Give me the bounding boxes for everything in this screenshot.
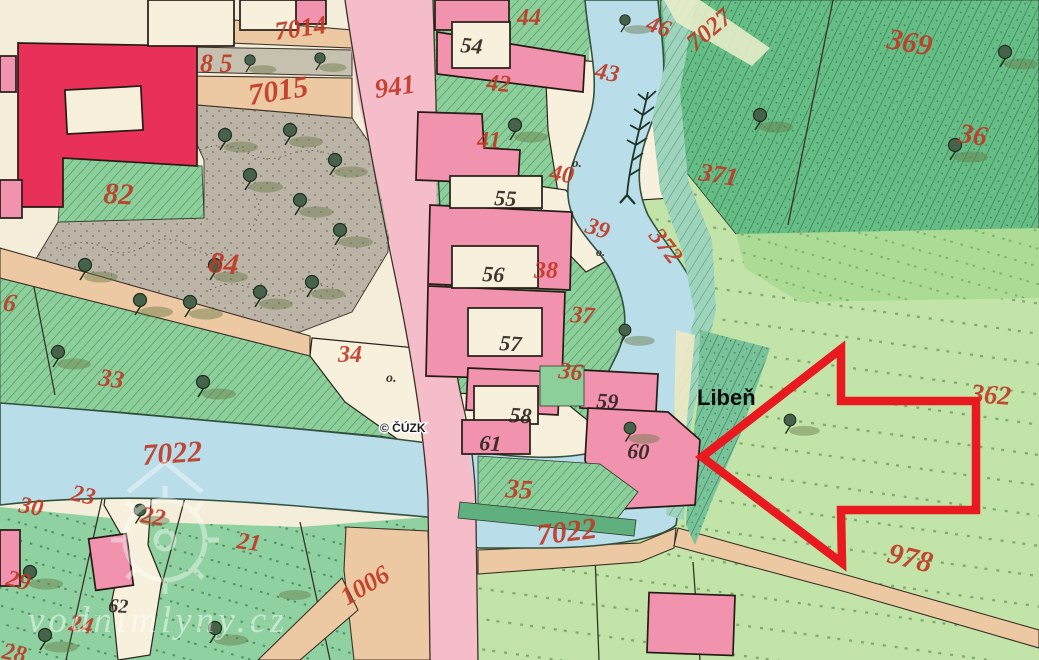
parcel-label-41: 41 xyxy=(476,128,501,154)
house-number-o.: o. xyxy=(386,371,397,386)
parcel-label-30: 30 xyxy=(16,492,45,522)
parcel-label-36: 36 xyxy=(556,358,584,386)
parcel-label-42: 42 xyxy=(484,70,511,98)
house-number-59: 59 xyxy=(596,388,619,414)
parcel-label-82: 82 xyxy=(103,177,135,212)
courtyard xyxy=(65,86,143,134)
house-number-56: 56 xyxy=(482,261,505,287)
house-number-54: 54 xyxy=(460,32,484,59)
parcel-label-33: 33 xyxy=(96,364,126,394)
cuzk-copyright: © ČÚZK xyxy=(380,420,426,435)
house-number-61: 61 xyxy=(479,430,502,456)
parcel-label-44: 44 xyxy=(516,5,541,31)
parcel-label-43: 43 xyxy=(592,58,621,88)
watermark-text: vodnimlyny.cz xyxy=(28,600,289,641)
parcel-label-36: 36 xyxy=(956,118,989,153)
parcel-label-941: 941 xyxy=(373,69,417,104)
house-number-60: 60 xyxy=(627,438,650,464)
parcel-label-23: 23 xyxy=(68,480,98,511)
parcel-label-34: 34 xyxy=(337,342,362,368)
map-canvas[interactable]: 70148 5701594144464243414039383723736353… xyxy=(0,0,1039,660)
parcel-label-371: 371 xyxy=(696,157,740,192)
place-label: Libeň xyxy=(697,385,756,410)
house-number-o.: o. xyxy=(572,155,582,170)
house-number-58: 58 xyxy=(509,402,533,428)
parcel-label-35: 35 xyxy=(504,473,534,505)
parcel-label-84: 84 xyxy=(207,246,240,281)
parcel-label-37: 37 xyxy=(569,302,597,330)
house-number-o.: o. xyxy=(596,245,605,259)
house-number-55: 55 xyxy=(494,185,517,211)
parcel-label-38: 38 xyxy=(533,258,558,284)
parcel-label-85: 8 5 xyxy=(200,49,233,78)
map-viewport: 70148 5701594144464243414039383723736353… xyxy=(0,0,1039,660)
parcel-label-21: 21 xyxy=(234,528,262,557)
house-number-57: 57 xyxy=(499,330,524,357)
